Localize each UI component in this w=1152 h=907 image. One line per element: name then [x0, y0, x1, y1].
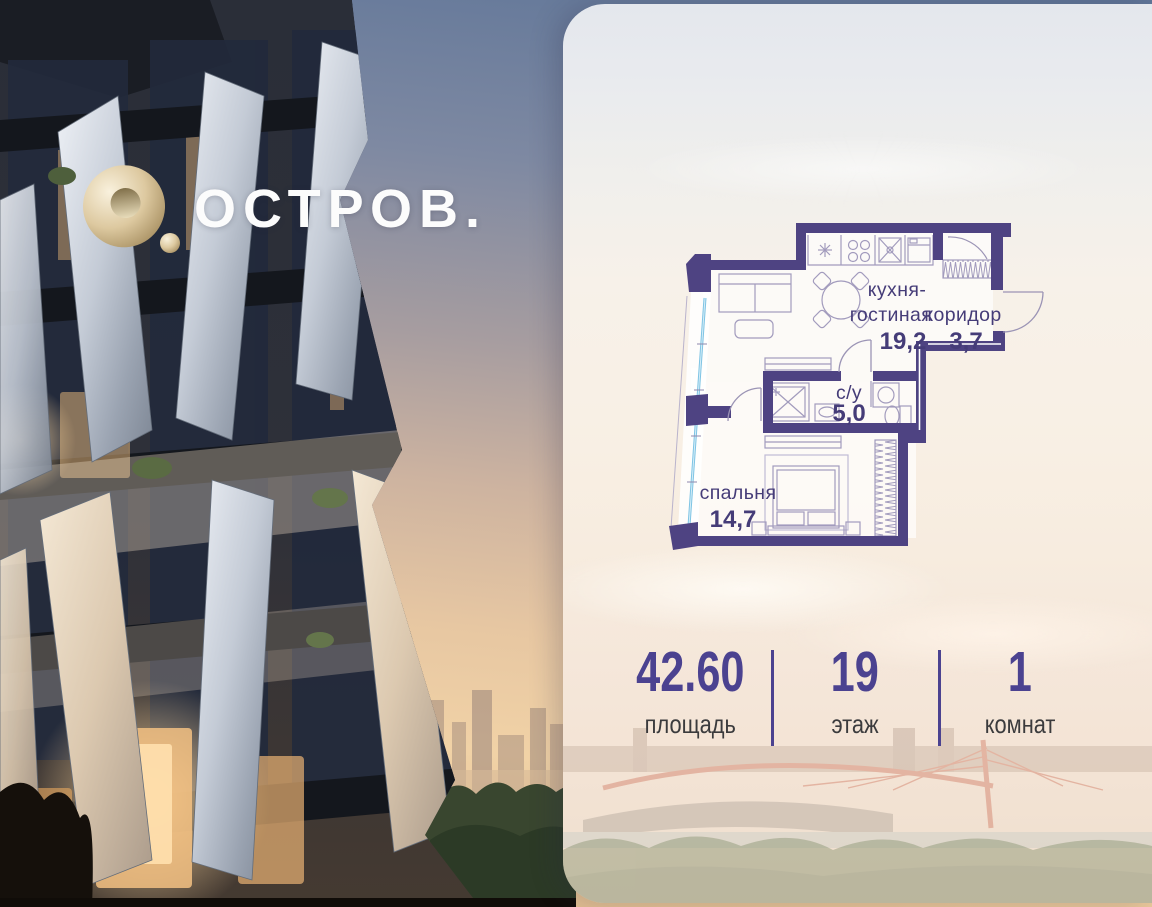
bottom-photo-strip [0, 898, 576, 907]
room-label-kitchen-living-2: гостиная [850, 304, 932, 326]
stat-rooms-label: комнат [935, 711, 1105, 738]
wall-slits [920, 344, 1002, 430]
room-area-bathroom: 5,0 [832, 400, 865, 427]
room-label-kitchen-living-1: кухня- [868, 279, 926, 301]
cloud-decor [623, 134, 1103, 204]
room-area-corridor: 3,7 [949, 328, 982, 355]
logo-ring-icon [78, 156, 198, 266]
stat-area-label: площадь [605, 711, 775, 738]
stat-floor-value: 19 [770, 644, 940, 701]
stat-rooms-value: 1 [935, 644, 1105, 701]
room-area-kitchen-living: 19,2 [880, 328, 927, 355]
coat-rack-hatch [943, 260, 998, 278]
room-label-bedroom: спальня [700, 482, 777, 504]
stat-area-value: 42.60 [605, 644, 775, 701]
dishwasher-icon [818, 243, 832, 257]
wardrobe-hatch [875, 440, 896, 536]
stat-floor: 19 этаж [770, 644, 940, 738]
stat-area: 42.60 площадь [605, 644, 775, 738]
building-illustration [0, 0, 576, 907]
entrance-door-arc [1003, 292, 1043, 332]
stat-floor-label: этаж [770, 711, 940, 738]
floor-plan: кухня- гостиная 19,2 коридор 3,7 с/у 5,0… [653, 208, 1055, 568]
room-area-bedroom: 14,7 [710, 506, 757, 533]
listing-card: кухня- гостиная 19,2 коридор 3,7 с/у 5,0… [563, 4, 1152, 903]
room-label-corridor: коридор [924, 304, 1001, 326]
ostrov-logo: ОСТРОВ. [78, 156, 528, 266]
logo-text: ОСТРОВ. [194, 178, 487, 240]
listing-stats: 42.60 площадь 19 этаж 1 комнат [563, 644, 1152, 764]
promo-screenshot: ОСТРОВ. [0, 0, 1152, 907]
stat-rooms: 1 комнат [935, 644, 1105, 738]
